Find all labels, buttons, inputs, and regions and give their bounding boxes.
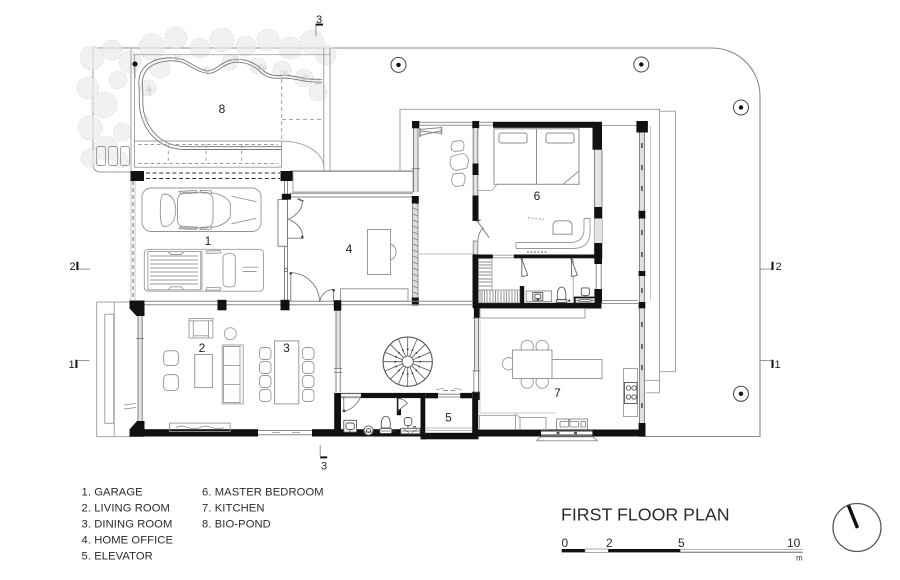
svg-text:1: 1 — [68, 359, 74, 371]
svg-text:10: 10 — [787, 536, 801, 550]
svg-text:5. ELEVATOR: 5. ELEVATOR — [82, 551, 153, 563]
svg-text:5: 5 — [445, 411, 452, 425]
svg-text:2: 2 — [606, 536, 613, 550]
svg-text:3: 3 — [283, 341, 290, 355]
svg-text:4. HOME OFFICE: 4. HOME OFFICE — [82, 535, 174, 547]
svg-text:m: m — [796, 554, 803, 563]
svg-text:0: 0 — [562, 536, 569, 550]
svg-text:2: 2 — [199, 341, 206, 355]
svg-text:2: 2 — [775, 261, 781, 273]
svg-text:3: 3 — [321, 461, 327, 473]
svg-text:7. KITCHEN: 7. KITCHEN — [202, 503, 265, 515]
svg-text:3. DINING ROOM: 3. DINING ROOM — [82, 519, 173, 531]
svg-text:1: 1 — [774, 359, 780, 371]
svg-text:4: 4 — [346, 242, 353, 256]
svg-text:8. BIO-POND: 8. BIO-POND — [202, 519, 271, 531]
svg-text:7: 7 — [554, 386, 561, 400]
svg-text:6. MASTER BEDROOM: 6. MASTER BEDROOM — [202, 487, 324, 499]
svg-text:6: 6 — [534, 189, 541, 203]
svg-text:5: 5 — [678, 536, 685, 550]
svg-text:2: 2 — [69, 261, 75, 273]
svg-text:8: 8 — [219, 102, 226, 116]
svg-text:FIRST FLOOR PLAN: FIRST FLOOR PLAN — [561, 505, 730, 525]
svg-text:1: 1 — [205, 234, 212, 248]
svg-text:2. LIVING ROOM: 2. LIVING ROOM — [82, 503, 170, 515]
svg-text:1. GARAGE: 1. GARAGE — [82, 487, 143, 499]
